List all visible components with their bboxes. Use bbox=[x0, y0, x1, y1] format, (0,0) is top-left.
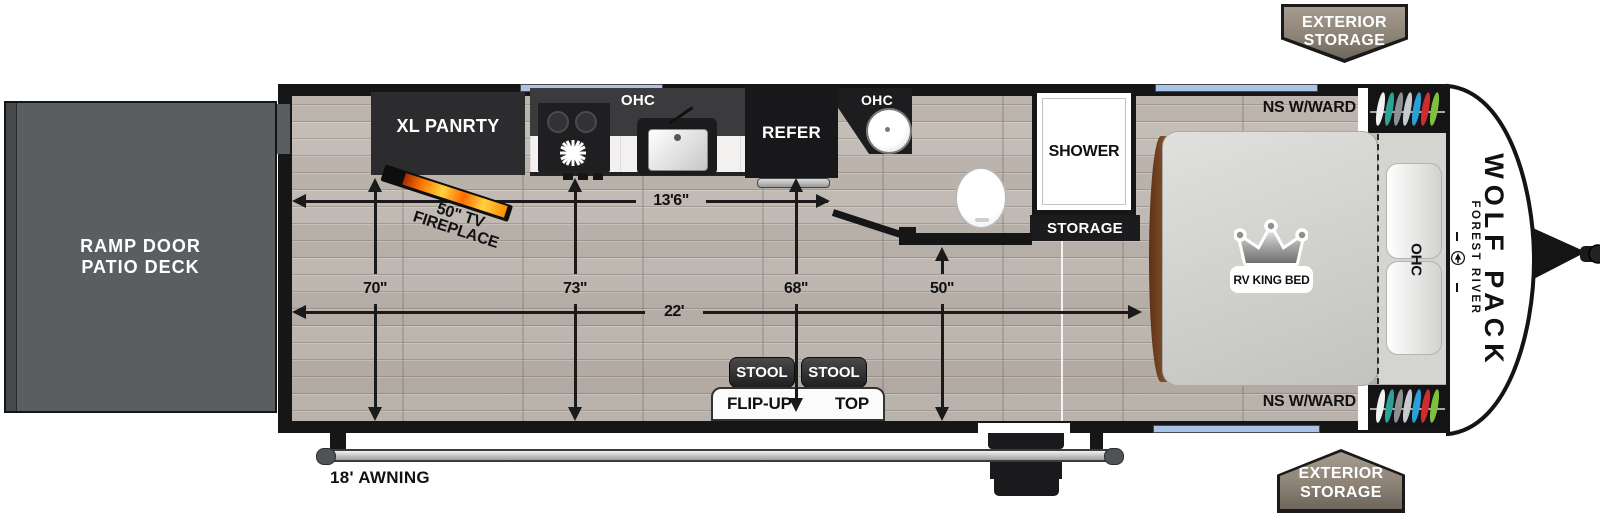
bath-storage: STORAGE bbox=[1030, 215, 1140, 241]
bed-label-pill: RV KING BED bbox=[1232, 268, 1311, 291]
burner-right bbox=[575, 111, 597, 133]
forest-river-logo bbox=[1450, 250, 1466, 266]
dim-22-seg1 bbox=[305, 311, 645, 314]
ramp-door-patio-deck: RAMP DOOR PATIO DECK bbox=[4, 101, 277, 413]
dim-22-arrow-left bbox=[292, 305, 306, 319]
dim-68-arrow-up bbox=[789, 178, 803, 192]
xl-pantry: XL PANRTY bbox=[371, 92, 525, 175]
dim-50-arrow-up bbox=[935, 247, 949, 261]
dim-13-6-label: 13'6" bbox=[636, 192, 706, 210]
window-bedroom-bottom bbox=[1153, 425, 1320, 433]
bed-label: RV KING BED bbox=[1233, 273, 1309, 287]
dim-50-label: 50" bbox=[917, 280, 967, 298]
entry-step-3 bbox=[994, 479, 1059, 496]
dim-73-seg1 bbox=[574, 191, 577, 274]
exterior-storage-badge-bottom: EXTERIORSTORAGE bbox=[1277, 449, 1405, 513]
dim-13-6-arrow-right bbox=[816, 194, 830, 208]
dim-68-seg1 bbox=[795, 191, 798, 274]
deck-label-line1: RAMP DOOR bbox=[80, 236, 201, 257]
entry-door-opening bbox=[978, 423, 1070, 433]
dim-68-arrow-down bbox=[789, 398, 803, 412]
wardrobe-top bbox=[1368, 88, 1447, 133]
badge-bottom-line1: EXTERIOR bbox=[1299, 465, 1384, 483]
stove-knob-3 bbox=[593, 173, 603, 180]
brand-dash-top bbox=[1456, 232, 1458, 241]
badge-top-line2: STORAGE bbox=[1304, 32, 1386, 50]
deck-label-line2: PATIO DECK bbox=[81, 257, 199, 278]
dim-68-seg2 bbox=[795, 304, 798, 400]
awning-label: 18' AWNING bbox=[330, 468, 430, 488]
stool-1: STOOL bbox=[729, 357, 795, 388]
dim-73-label: 73" bbox=[550, 280, 600, 298]
dim-70-seg1 bbox=[374, 191, 377, 274]
ohc-kitchen-label: OHC bbox=[608, 92, 668, 109]
stove bbox=[538, 103, 610, 172]
stool-2: STOOL bbox=[801, 357, 867, 388]
kitchen-sink bbox=[637, 118, 717, 175]
window-bedroom-top bbox=[1155, 84, 1318, 92]
flip-up-label-left: FLIP-UP bbox=[727, 394, 792, 414]
ward-gap-bottom bbox=[1358, 385, 1368, 430]
brand-model: WOLF PACK bbox=[1479, 141, 1509, 381]
wardrobe-bottom bbox=[1368, 385, 1447, 430]
dim-70-seg2 bbox=[374, 304, 377, 408]
dim-73-arrow-up bbox=[568, 178, 582, 192]
dim-22-arrow-right bbox=[1128, 305, 1142, 319]
pantry-label: XL PANRTY bbox=[396, 116, 499, 137]
dim-68-label: 68" bbox=[771, 280, 821, 298]
flip-up-label-right: TOP bbox=[835, 394, 869, 414]
entry-step-1 bbox=[988, 433, 1064, 449]
ohc-bed-label: OHC bbox=[1408, 240, 1425, 280]
floor-seam bbox=[1061, 238, 1063, 421]
toilet-seat-slot bbox=[975, 218, 989, 222]
brand-dash-bottom bbox=[1456, 283, 1458, 292]
ward-gap-top bbox=[1358, 88, 1368, 133]
stool-1-label: STOOL bbox=[736, 364, 787, 381]
shower: SHOWER bbox=[1032, 88, 1136, 215]
exterior-storage-badge-top: EXTERIORSTORAGE bbox=[1281, 4, 1408, 63]
awning-bracket-right bbox=[1090, 431, 1103, 451]
sink-drain bbox=[674, 134, 681, 141]
storage-label: STORAGE bbox=[1047, 220, 1123, 237]
shower-label: SHOWER bbox=[1049, 143, 1120, 161]
awning-cap-left bbox=[316, 448, 336, 465]
ns-ward-label-top: NS W/WARD bbox=[1216, 99, 1356, 117]
ramp-door-opening bbox=[277, 104, 290, 154]
dim-22-label: 22' bbox=[645, 303, 703, 321]
ohc-vanity-label: OHC bbox=[854, 92, 900, 108]
dim-13-6-seg2 bbox=[706, 200, 828, 203]
refrigerator: REFER bbox=[745, 87, 838, 178]
badge-top-line1: EXTERIOR bbox=[1302, 14, 1387, 32]
toilet bbox=[955, 167, 1007, 229]
bed-foot-dashed-line bbox=[1377, 134, 1379, 384]
floorplan: EXTERIORSTORAGE EXTERIORSTORAGE RAMP DOO… bbox=[0, 0, 1600, 520]
refer-label: REFER bbox=[762, 123, 821, 143]
dim-22-seg2 bbox=[703, 311, 1133, 314]
burner-starburst bbox=[558, 138, 588, 168]
crown-icon bbox=[1234, 218, 1308, 270]
awning-bar bbox=[318, 449, 1122, 462]
dim-50-arrow-down bbox=[935, 407, 949, 421]
ramp-door-edge bbox=[6, 103, 17, 411]
dim-50-seg2 bbox=[941, 304, 944, 408]
dim-70-arrow-down bbox=[368, 407, 382, 421]
dim-73-arrow-down bbox=[568, 407, 582, 421]
ns-ward-label-bottom: NS W/WARD bbox=[1216, 393, 1356, 411]
awning-cap-right bbox=[1104, 448, 1124, 465]
badge-bottom-line2: STORAGE bbox=[1300, 484, 1382, 502]
burner-left bbox=[547, 111, 569, 133]
dim-13-6-arrow-left bbox=[292, 194, 306, 208]
dim-73-seg2 bbox=[574, 304, 577, 408]
bath-wall bbox=[905, 233, 1032, 245]
entry-step-2 bbox=[990, 462, 1062, 479]
vanity-sink-drain bbox=[885, 127, 890, 132]
dim-70-label: 70" bbox=[350, 280, 400, 298]
stool-2-label: STOOL bbox=[808, 364, 859, 381]
dim-50-seg1 bbox=[941, 260, 944, 274]
